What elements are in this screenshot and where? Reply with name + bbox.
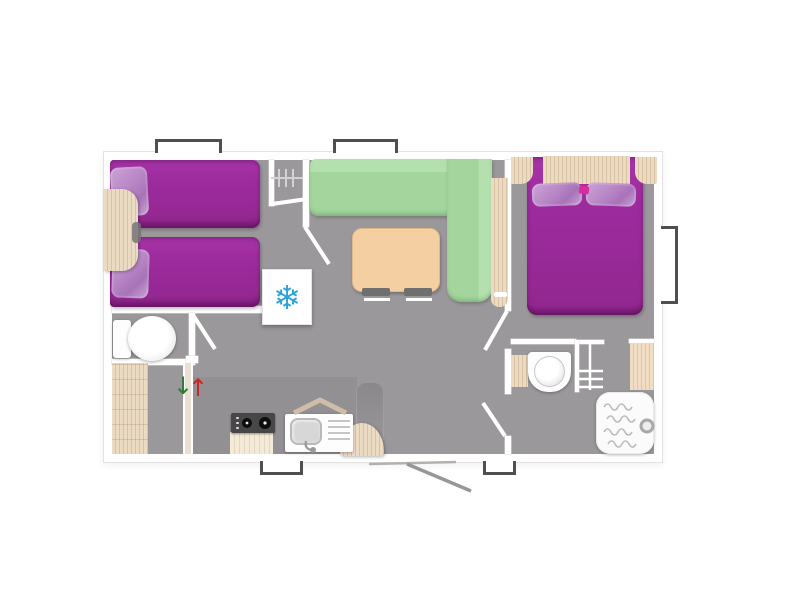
floor-plan-canvas: ❄: [0, 0, 800, 600]
stool-left: [362, 288, 390, 296]
toilet-bowl: [128, 316, 176, 361]
freezer: ❄: [262, 269, 312, 325]
towel-panel: [630, 343, 654, 390]
bath-shelf-top-wall: [575, 340, 604, 344]
side-table-notch: [494, 292, 507, 297]
bath-shelf-left-wall: [575, 340, 579, 392]
window-top-right: [333, 139, 398, 153]
kitchen-sink-bowl: [290, 418, 322, 445]
stool-right: [404, 288, 432, 296]
window-right: [661, 226, 678, 304]
snowflake-icon: ❄: [273, 281, 301, 314]
hob-cabinet: [230, 432, 273, 454]
entrance-door-frame: [369, 462, 456, 464]
window-bottom-bath: [483, 461, 516, 475]
entrance-door-leaf: [407, 464, 471, 491]
pillow-double-right: [586, 182, 637, 207]
bed-ribbon: [578, 185, 589, 194]
pillow-double-left: [532, 182, 583, 207]
stool-left-edge: [364, 298, 390, 301]
window-bottom-kitchen: [260, 461, 303, 475]
sofa-side-table: [491, 178, 508, 307]
dining-table: [352, 228, 440, 292]
corner-sofa-back-section: [310, 159, 456, 216]
entrance-storage-cabinet: [112, 363, 148, 454]
closet-left-wall: [269, 160, 274, 206]
bath-counter: [511, 355, 528, 387]
headboard-shelf: [543, 156, 630, 184]
gas-hob: [231, 413, 275, 433]
twin-bedroom-divider-wall: [303, 160, 309, 227]
hall-wall-nub: [186, 356, 198, 363]
entry-arrow-up: ↑: [188, 374, 208, 402]
nightstand-left: [511, 157, 533, 184]
window-top-left: [155, 139, 222, 153]
washbasin-bowl: [534, 356, 565, 387]
bedside-decor: [132, 222, 141, 243]
shower-tray: [596, 392, 654, 454]
nightstand-right: [635, 157, 657, 184]
corner-sofa-side-section: [447, 159, 492, 302]
stool-right-edge: [406, 298, 432, 301]
living-master-wall-lower: [505, 436, 511, 454]
twin-bedroom-bottom-wall: [112, 306, 262, 313]
bathroom-north-wall-left: [511, 339, 576, 344]
